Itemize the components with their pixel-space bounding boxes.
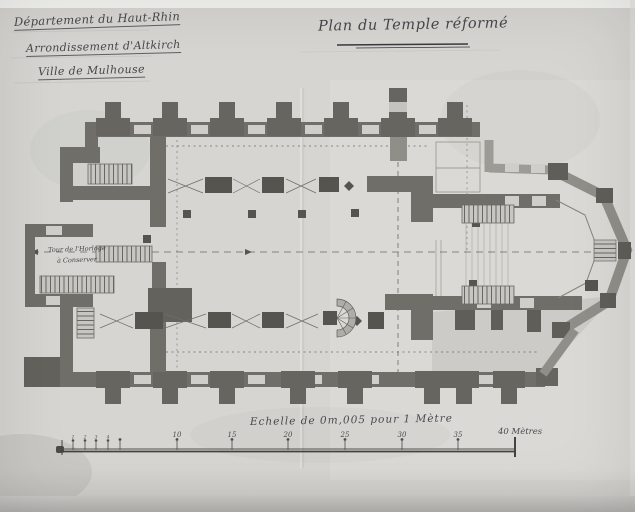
scale-minor-label: 1 (72, 435, 75, 441)
scale-end-label: 40 Mètres (497, 426, 543, 437)
scale-label-20: 20 (283, 431, 293, 439)
photo-bottom-edge (0, 496, 635, 512)
scale-minor-label: 3 (95, 435, 98, 441)
plan-title: Plan du Temple réformé (318, 15, 509, 34)
pulpit-stair (323, 299, 356, 337)
scale-label-35: 35 (454, 431, 463, 439)
scale-minor-label: 2 (83, 435, 87, 441)
title-underline (337, 44, 470, 48)
city-line: Ville de Mulhouse (38, 63, 145, 81)
scale-label-30: 30 (398, 431, 407, 439)
photo-bottom-shadow (0, 468, 635, 498)
scale-label-10: 10 (173, 431, 182, 439)
tower-annotation-line2: à Conserver (57, 255, 97, 264)
photographed-plan-sheet: 1 2 3 4 10 15 20 25 30 35 40 Mètres Eche… (0, 0, 635, 512)
scale-label-15: 15 (228, 431, 237, 439)
scale-label-25: 25 (340, 431, 350, 439)
scale-minor-label: 4 (106, 435, 110, 441)
